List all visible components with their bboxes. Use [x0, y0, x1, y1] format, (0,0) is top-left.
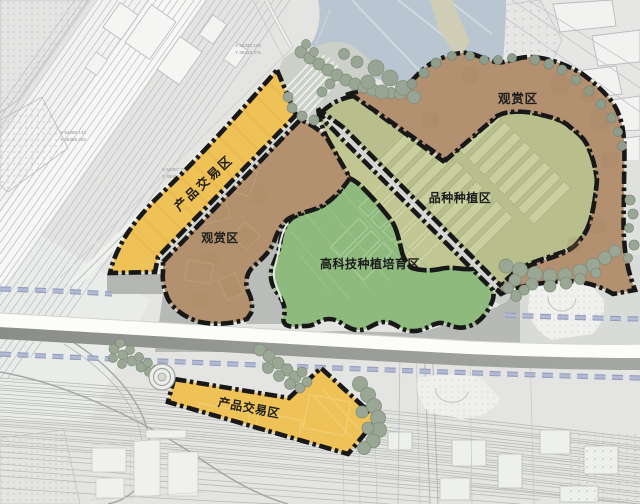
- svg-text:观赏区: 观赏区: [201, 230, 239, 245]
- svg-text:X 54280.142: X 54280.142: [60, 130, 87, 135]
- svg-text:Y 38366.403: Y 38366.403: [60, 137, 86, 142]
- svg-text:X 54320.196: X 54320.196: [235, 43, 262, 48]
- svg-text:高科技种植培育区: 高科技种植培育区: [320, 256, 420, 271]
- svg-text:Y 38418.375: Y 38418.375: [235, 50, 261, 55]
- svg-text:观赏区: 观赏区: [498, 91, 538, 106]
- svg-text:品种种植区: 品种种植区: [429, 190, 492, 205]
